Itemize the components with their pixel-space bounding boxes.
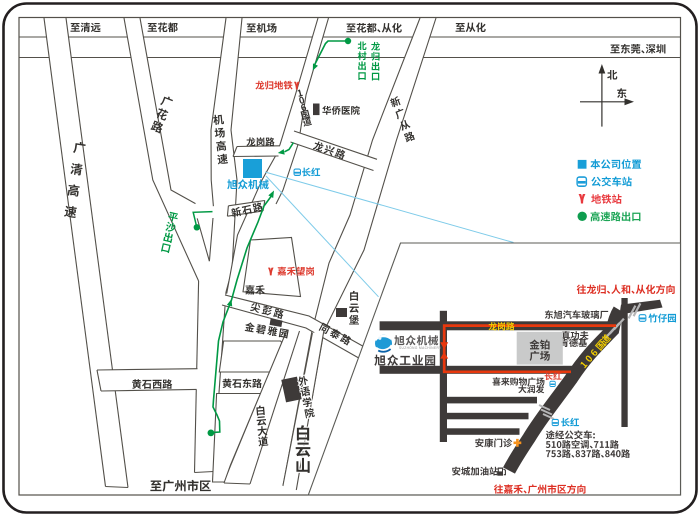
svg-text:SUZHONG MACHINERY: SUZHONG MACHINERY <box>399 346 442 350</box>
